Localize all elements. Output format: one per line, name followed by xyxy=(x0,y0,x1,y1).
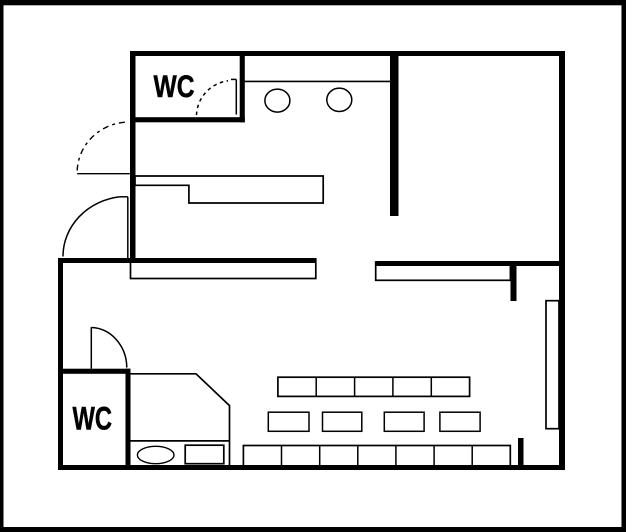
svg-text:WC: WC xyxy=(73,401,113,437)
svg-text:WC: WC xyxy=(154,68,195,104)
